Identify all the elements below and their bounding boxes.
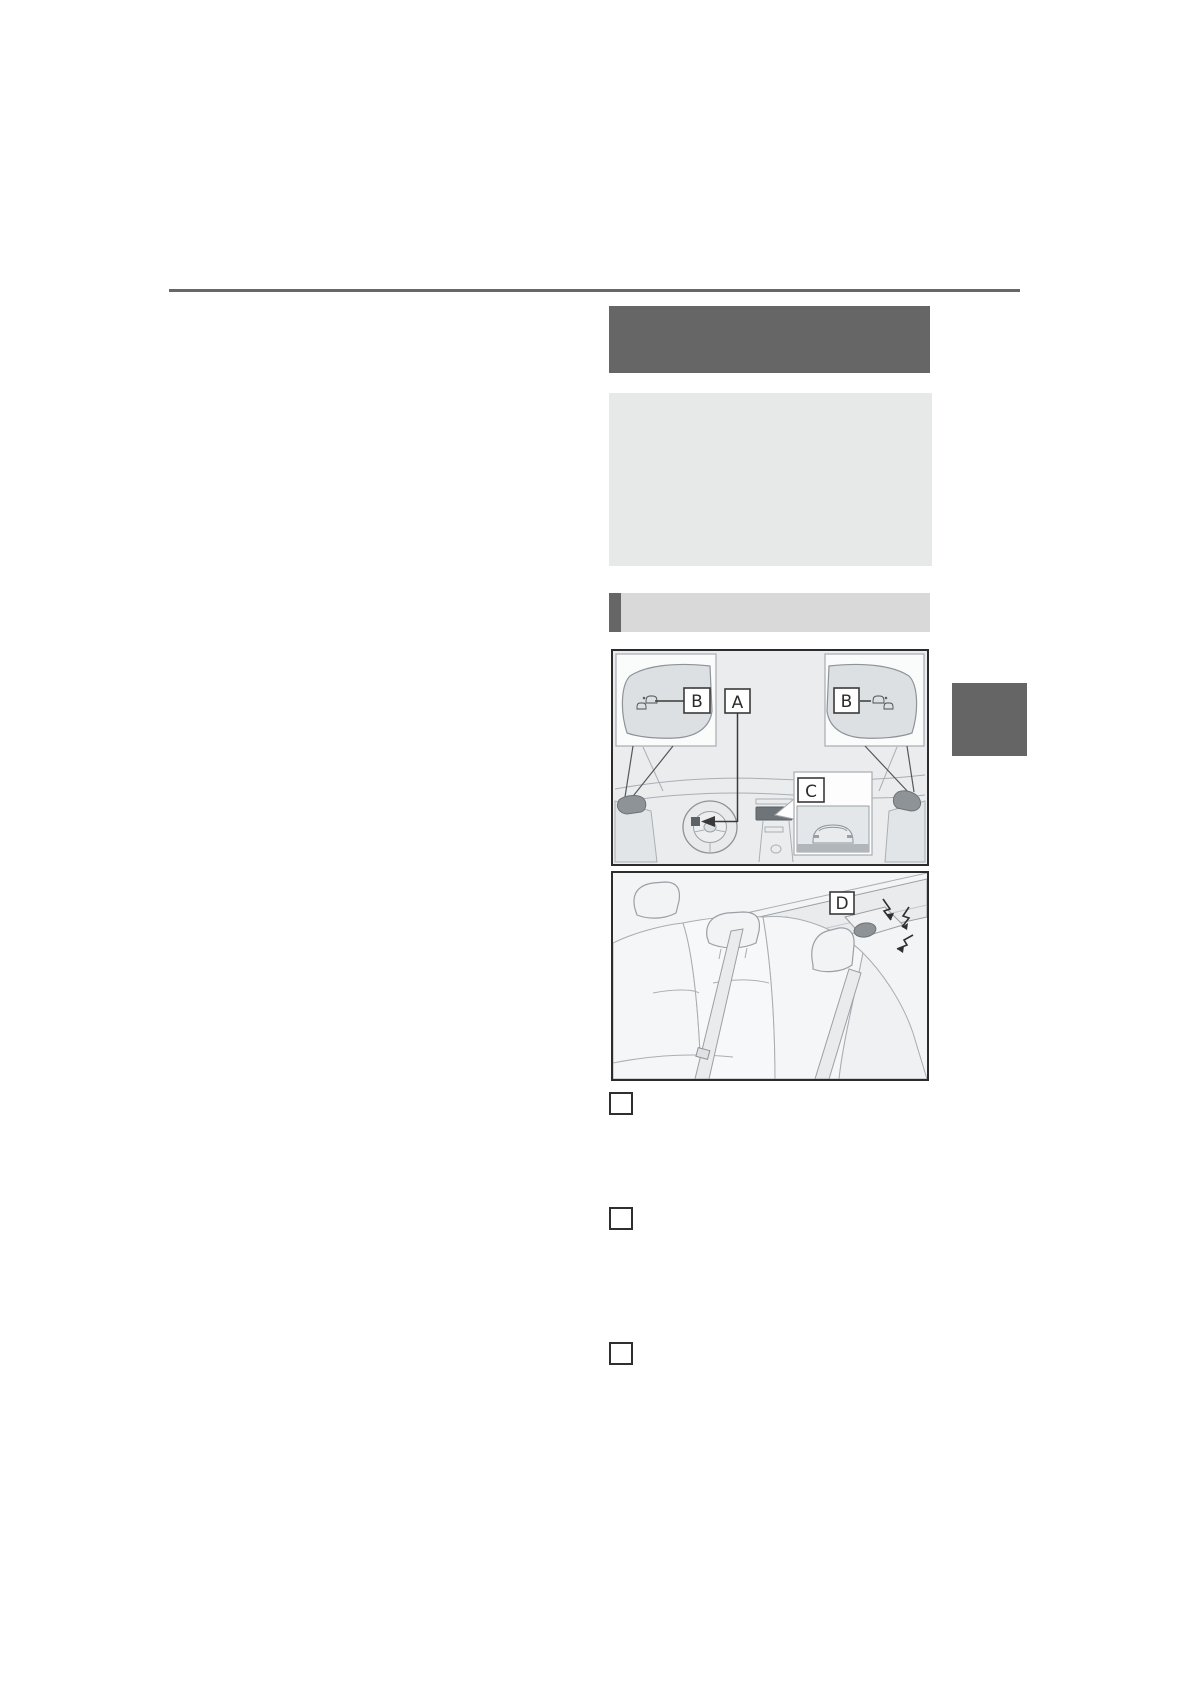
page-top-rule xyxy=(169,289,1020,292)
console-panel xyxy=(765,827,783,832)
dash-vent xyxy=(756,799,792,804)
door-mirror-left xyxy=(617,796,645,814)
dashboard-illustration: B A B xyxy=(613,651,927,864)
taillight-right xyxy=(847,835,852,838)
manual-page: B A B xyxy=(0,0,1190,1684)
meter-display-target xyxy=(691,817,700,826)
label-letter-b-right: B xyxy=(841,692,853,712)
rear-seat-left xyxy=(613,923,701,1079)
shift-knob xyxy=(771,845,781,853)
label-letter-d: D xyxy=(835,894,848,914)
door-mirror-right xyxy=(893,791,920,811)
headrest-left xyxy=(634,882,680,918)
figure-rear-seat-buzzer: D xyxy=(611,871,929,1081)
summary-info-block xyxy=(609,393,932,566)
legend-marker-3 xyxy=(609,1342,633,1365)
heading-bar-fill xyxy=(621,593,930,632)
dashboard-top-line xyxy=(615,793,925,803)
label-letter-a: A xyxy=(732,693,744,713)
left-inset-pointer-lines xyxy=(625,746,673,800)
label-letter-b-left: B xyxy=(691,692,703,712)
subsection-heading-bar xyxy=(609,593,930,632)
section-title-block xyxy=(609,306,930,373)
screen-bottom-bar xyxy=(797,844,869,852)
taillight-left xyxy=(814,835,819,838)
chapter-index-tab xyxy=(952,683,1027,756)
heading-accent-square xyxy=(609,593,621,632)
rear-seat-illustration: D xyxy=(613,873,927,1079)
figure-dashboard-overview: B A B xyxy=(611,649,929,866)
label-letter-c: C xyxy=(805,782,817,802)
legend-marker-2 xyxy=(609,1207,633,1230)
legend-marker-1 xyxy=(609,1092,633,1115)
